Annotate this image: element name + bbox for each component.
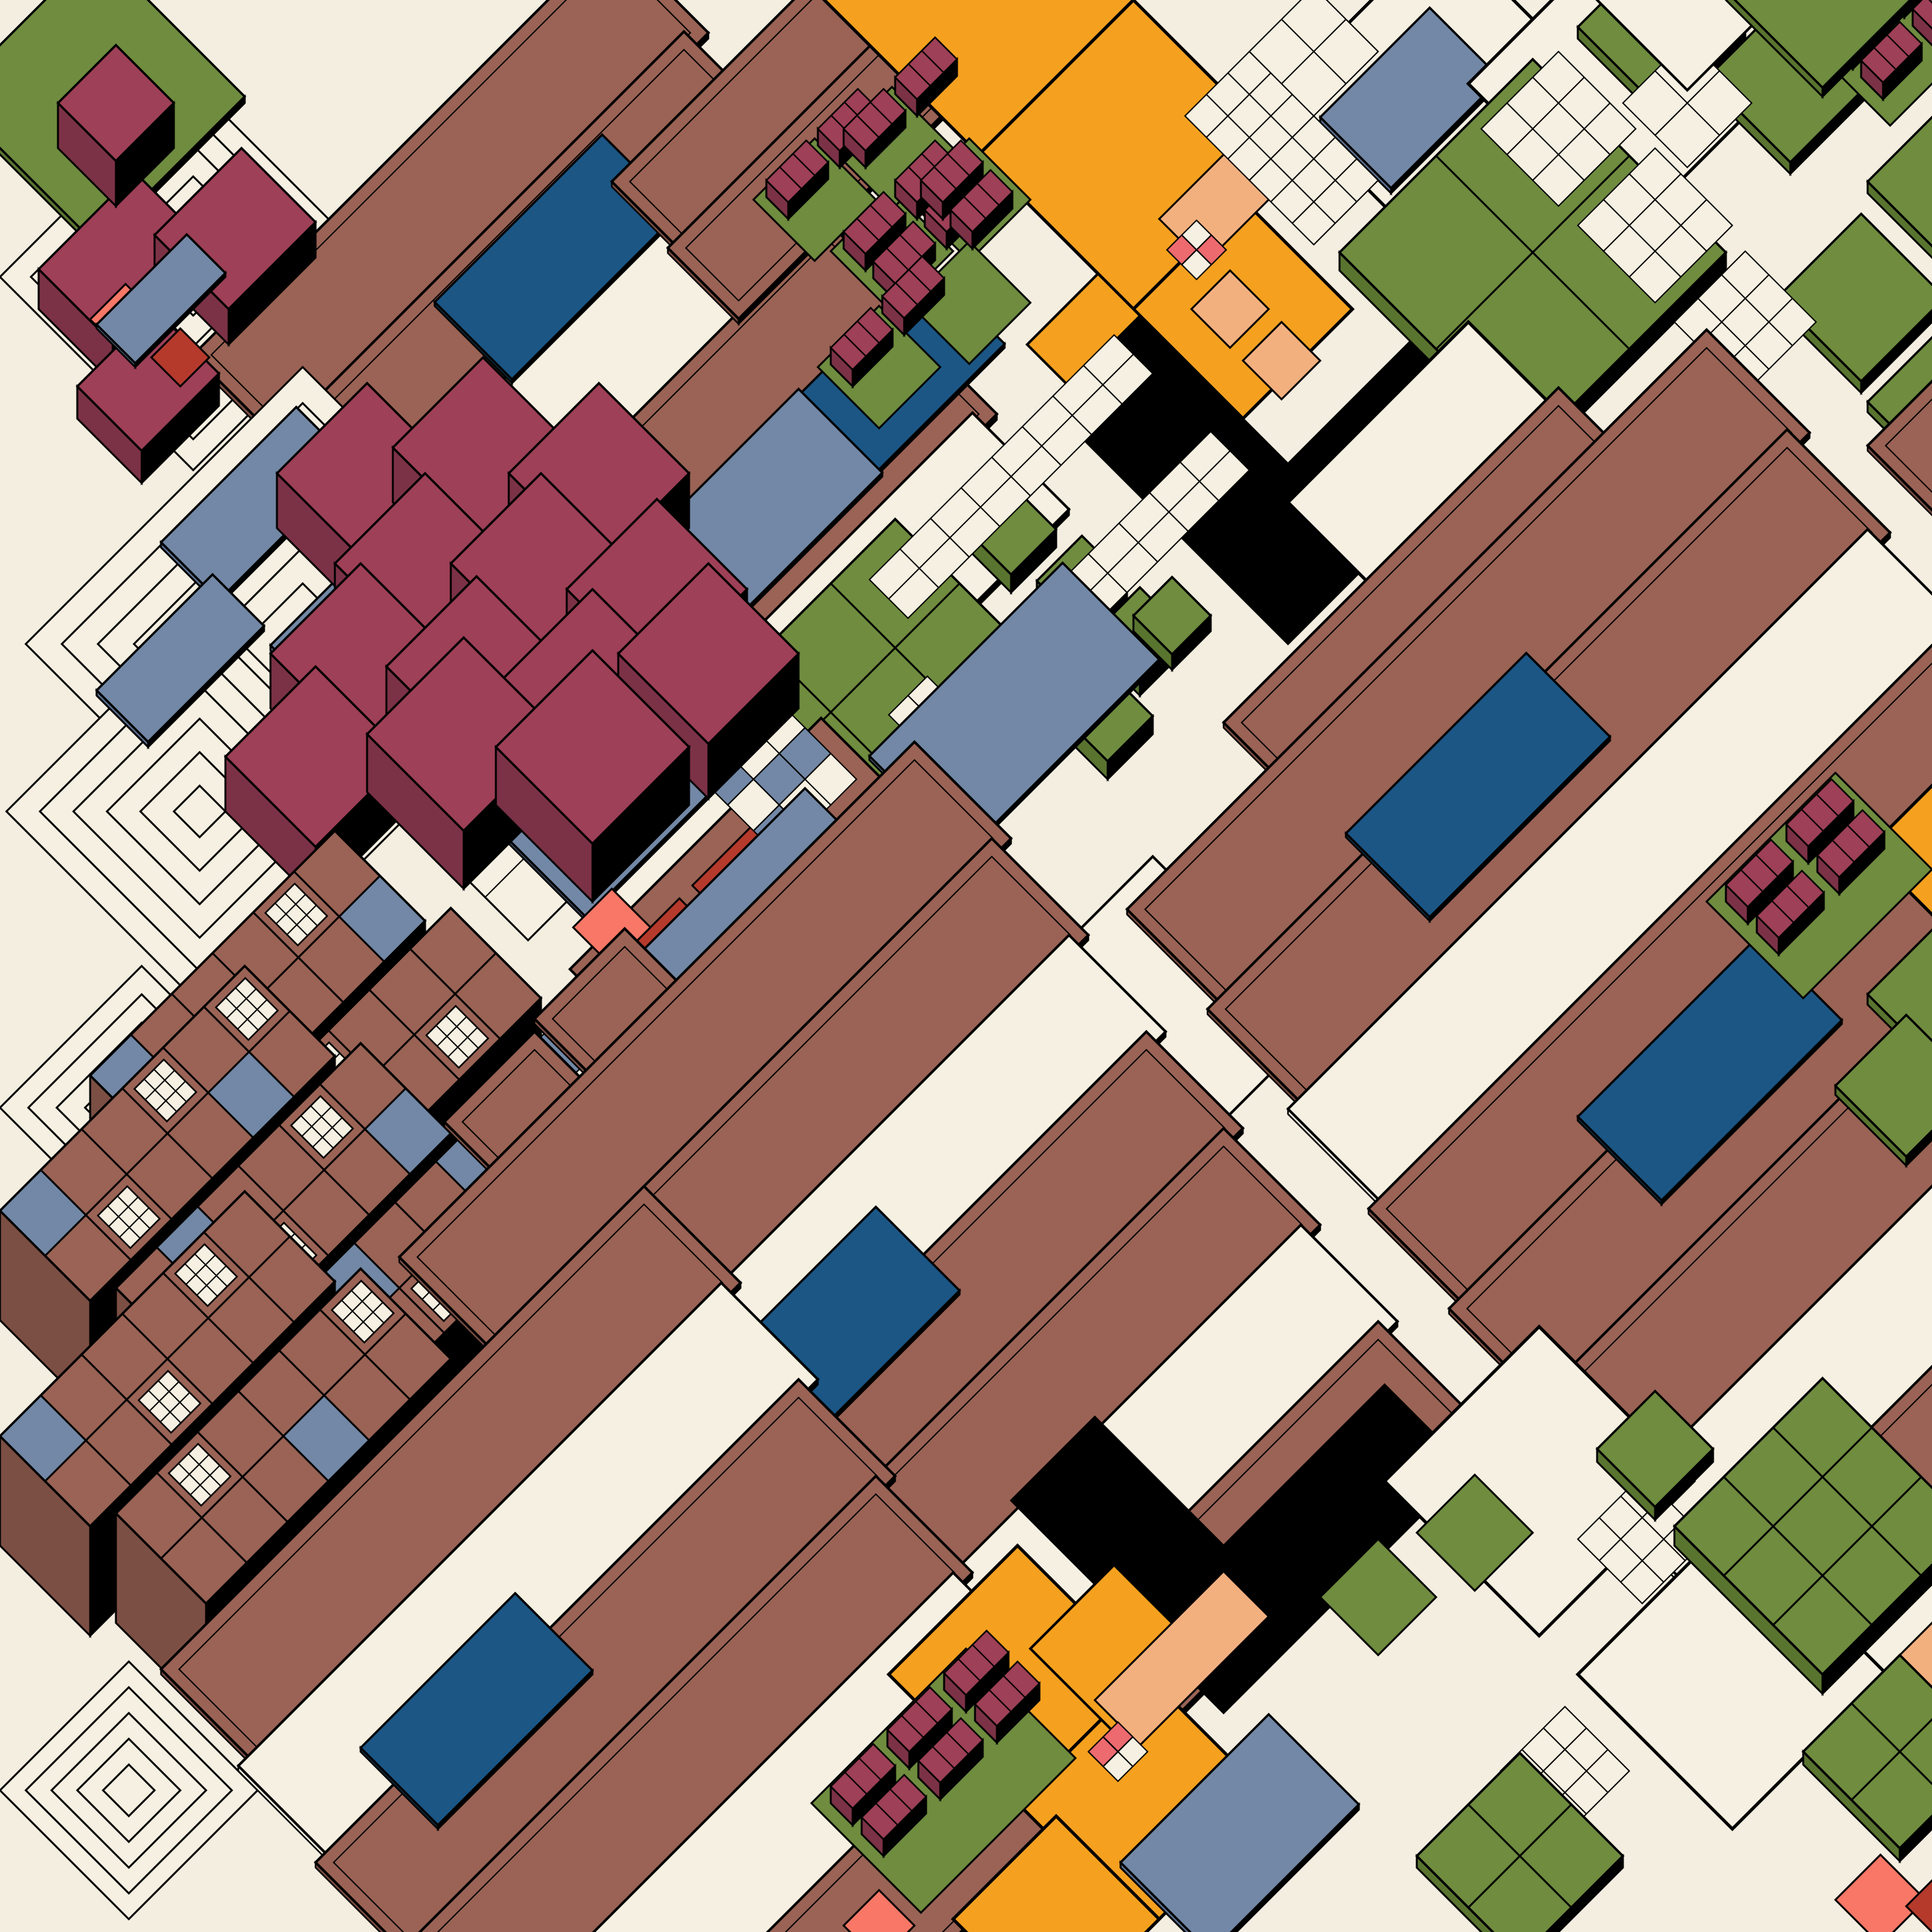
isometric-artwork-canvas <box>0 0 1932 1932</box>
motif-flat-red <box>1906 1871 1932 1932</box>
isometric-block-mosaic <box>0 0 1932 1932</box>
motif-flat-salmon <box>1835 1855 1926 1932</box>
